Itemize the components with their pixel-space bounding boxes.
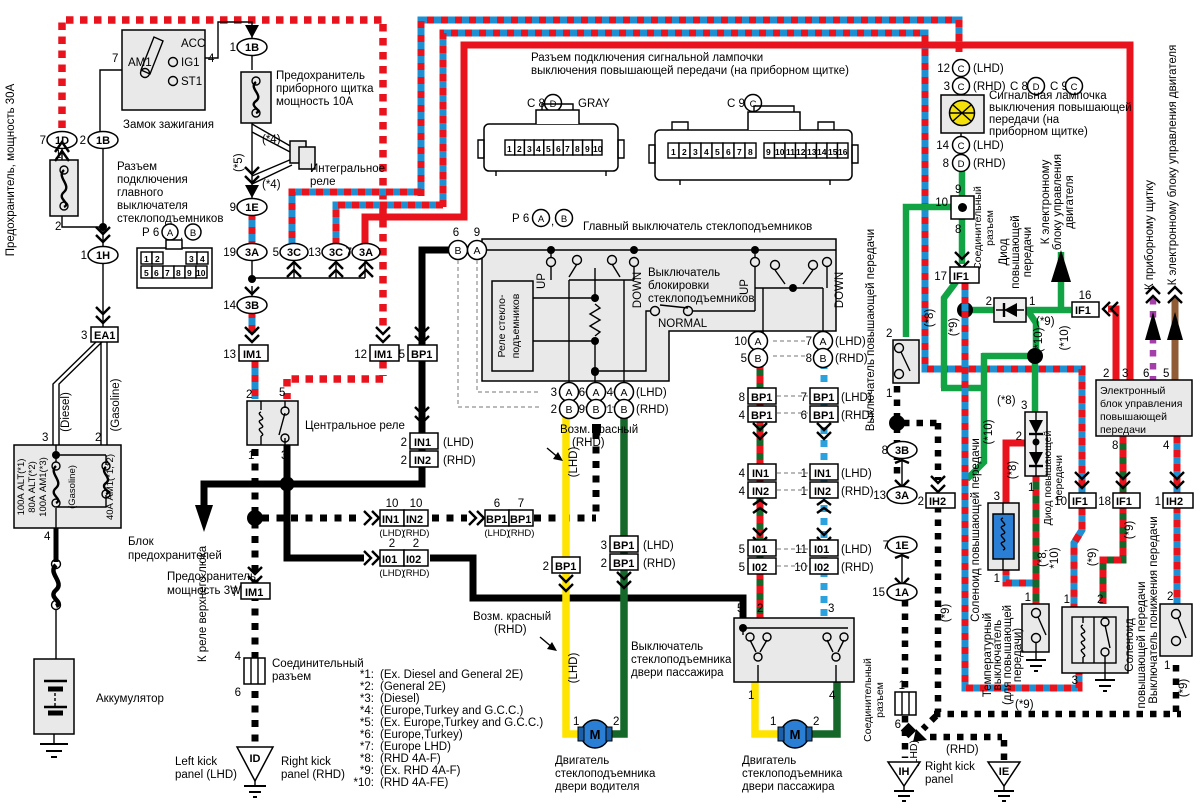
svg-text:3: 3 xyxy=(81,330,87,342)
svg-text:5: 5 xyxy=(144,268,149,278)
svg-text:13: 13 xyxy=(873,490,886,502)
svg-text:BP1: BP1 xyxy=(486,514,507,526)
svg-text:18: 18 xyxy=(1098,496,1111,508)
svg-text:Выключатель понижения передачи: Выключатель понижения передачи xyxy=(1148,516,1160,703)
svg-text:подключения: подключения xyxy=(117,174,188,186)
svg-text:10: 10 xyxy=(794,562,807,574)
svg-text:4: 4 xyxy=(235,651,242,663)
svg-text:К электронному блоку управлени: К электронному блоку управления двигател… xyxy=(1167,45,1179,286)
svg-text:(*10): (*10) xyxy=(1059,325,1071,350)
svg-text:IN1: IN1 xyxy=(382,514,399,526)
svg-text:Right kick: Right kick xyxy=(281,756,331,768)
svg-text:2: 2 xyxy=(886,328,892,340)
svg-text:А: А xyxy=(538,214,545,225)
svg-text:16: 16 xyxy=(1079,290,1092,302)
svg-text:Двигатель: Двигатель xyxy=(555,755,609,767)
svg-text:передачи: передачи xyxy=(1100,424,1146,436)
svg-text:IH: IH xyxy=(899,766,910,778)
svg-text:IG1: IG1 xyxy=(181,57,200,69)
svg-text:двери пассажира: двери пассажира xyxy=(631,667,724,679)
svg-text:Соединительный: Соединительный xyxy=(972,186,984,270)
svg-text:IF1: IF1 xyxy=(1072,496,1088,508)
svg-text:С: С xyxy=(958,64,965,75)
svg-text:BP1: BP1 xyxy=(813,392,834,404)
svg-text:14: 14 xyxy=(936,140,949,152)
svg-text:2: 2 xyxy=(246,389,252,401)
svg-text:(Gasoline): (Gasoline) xyxy=(110,378,122,431)
svg-text:4: 4 xyxy=(208,53,215,65)
svg-text:2: 2 xyxy=(551,404,557,416)
svg-text:Аккумулятор: Аккумулятор xyxy=(96,693,164,705)
svg-text:IN1: IN1 xyxy=(752,468,769,480)
svg-text:IN1: IN1 xyxy=(814,468,831,480)
svg-text:3: 3 xyxy=(828,603,834,615)
svg-text:1: 1 xyxy=(1155,496,1161,508)
svg-text:(RHD): (RHD) xyxy=(841,562,874,574)
svg-text:Замок зажигания: Замок зажигания xyxy=(123,119,214,131)
svg-text:I02: I02 xyxy=(814,562,829,574)
svg-text:10: 10 xyxy=(734,336,747,348)
svg-text:передачи: передачи xyxy=(1053,455,1065,501)
svg-text:(Ex. Diesel and General 2Е): (Ex. Diesel and General 2Е) xyxy=(380,669,523,681)
svg-text:17: 17 xyxy=(934,271,947,283)
svg-text:9: 9 xyxy=(766,147,771,157)
svg-text:IF1: IF1 xyxy=(953,271,969,283)
svg-text:IH2: IH2 xyxy=(1166,496,1183,508)
svg-text:BP1: BP1 xyxy=(751,392,772,404)
svg-text:блокировки: блокировки xyxy=(648,280,709,292)
svg-text:Центральное реле: Центральное реле xyxy=(305,420,405,432)
svg-text:80А ALT(*2): 80А ALT(*2) xyxy=(27,461,38,513)
svg-text:(LHD): (LHD) xyxy=(484,528,509,539)
svg-text:13: 13 xyxy=(223,349,236,361)
svg-text:(RHD 4A-F): (RHD 4A-F) xyxy=(380,753,441,765)
svg-text:В: В xyxy=(592,404,599,416)
svg-text:*1:: *1: xyxy=(360,669,374,681)
svg-text:1: 1 xyxy=(1028,482,1034,494)
svg-text:А: А xyxy=(473,245,480,257)
svg-text:передачи: передачи xyxy=(1022,227,1034,277)
svg-text:(LHD): (LHD) xyxy=(379,568,404,579)
svg-text:3В: 3В xyxy=(245,300,259,312)
svg-text:(*9): (*9) xyxy=(1087,548,1099,567)
svg-text:5: 5 xyxy=(279,387,285,399)
svg-text:В: В xyxy=(565,404,572,416)
svg-text:(*9): (*9) xyxy=(948,318,960,337)
svg-text:1: 1 xyxy=(801,486,807,498)
svg-text:А: А xyxy=(620,387,627,399)
svg-text:(*4): (*4) xyxy=(262,134,281,146)
svg-text:M: M xyxy=(790,727,801,742)
svg-text:повышающей передачи: повышающей передачи xyxy=(1136,581,1148,708)
svg-text:передачи (на: передачи (на xyxy=(989,114,1060,126)
svg-text:(LHD): (LHD) xyxy=(568,447,580,478)
svg-text:Интегральное: Интегральное xyxy=(310,163,385,175)
svg-text:Предохранитель, мощность 30А: Предохранитель, мощность 30А xyxy=(5,83,17,256)
svg-text:10: 10 xyxy=(775,147,785,157)
svg-text:I01: I01 xyxy=(382,554,397,566)
svg-text:6: 6 xyxy=(556,144,561,154)
svg-text:ACC: ACC xyxy=(181,38,205,50)
svg-text:3: 3 xyxy=(994,491,1000,503)
svg-text:100А ALT(*1): 100А ALT(*1) xyxy=(16,459,27,516)
svg-text:1: 1 xyxy=(507,144,512,154)
svg-text:главного: главного xyxy=(117,187,163,199)
svg-text:1: 1 xyxy=(81,250,87,262)
svg-text:выключателя: выключателя xyxy=(117,200,188,212)
svg-text:*9:: *9: xyxy=(360,765,374,777)
svg-text:реле: реле xyxy=(310,176,336,188)
svg-text:(RHD): (RHD) xyxy=(973,158,1006,170)
svg-text:(*5): (*5) xyxy=(233,153,245,172)
svg-text:А: А xyxy=(819,336,826,348)
svg-text:2: 2 xyxy=(1167,591,1173,603)
svg-text:IM1: IM1 xyxy=(243,349,261,361)
svg-text:2: 2 xyxy=(401,455,407,467)
svg-text:(*8): (*8) xyxy=(1007,461,1019,480)
svg-text:3В: 3В xyxy=(895,445,909,457)
svg-text:19: 19 xyxy=(223,247,236,259)
svg-text:2: 2 xyxy=(95,432,101,444)
svg-text:DOWN: DOWN xyxy=(632,272,644,308)
svg-text:2: 2 xyxy=(517,144,522,154)
svg-text:разъем: разъем xyxy=(984,210,996,246)
svg-text:DOWN: DOWN xyxy=(834,272,846,308)
svg-text:16: 16 xyxy=(838,147,848,157)
svg-text:*2:: *2: xyxy=(360,681,374,693)
svg-text:5: 5 xyxy=(739,562,745,574)
svg-text:7: 7 xyxy=(165,268,170,278)
svg-text:7: 7 xyxy=(801,392,807,404)
svg-text:2: 2 xyxy=(389,538,395,550)
svg-text:,: , xyxy=(551,216,554,228)
svg-text:(Ex. Europe,Turkey and G.C.C.: (Ex. Europe,Turkey and G.C.C.) xyxy=(380,717,543,729)
svg-text:9: 9 xyxy=(579,404,585,416)
svg-text:3С: 3С xyxy=(329,247,343,259)
svg-text:Выключатель повышающей передач: Выключатель повышающей передачи xyxy=(865,229,877,431)
svg-text:6: 6 xyxy=(154,268,159,278)
svg-text:BP1: BP1 xyxy=(411,349,432,361)
svg-text:5: 5 xyxy=(737,603,743,615)
svg-text:1B: 1B xyxy=(96,135,110,147)
svg-text:*8:: *8: xyxy=(360,753,374,765)
svg-text:А: А xyxy=(592,387,599,399)
svg-text:*7:: *7: xyxy=(360,741,374,753)
svg-text:(RHD): (RHD) xyxy=(636,404,669,416)
svg-text:(Ex. RHD 4A-F): (Ex. RHD 4A-F) xyxy=(380,765,461,777)
svg-text:1H: 1H xyxy=(96,250,110,262)
svg-text:IN1: IN1 xyxy=(414,437,431,449)
svg-text:Двигатель: Двигатель xyxy=(742,755,796,767)
svg-text:подъемников: подъемников xyxy=(510,293,522,358)
svg-text:12: 12 xyxy=(354,349,367,361)
svg-text:(RHD): (RHD) xyxy=(494,624,527,636)
svg-text:Соединительный: Соединительный xyxy=(272,658,364,670)
svg-text:А: А xyxy=(565,387,572,399)
svg-text:2: 2 xyxy=(682,147,687,157)
svg-text:2: 2 xyxy=(613,716,619,728)
svg-text:40А АМ1(*1,*2): 40А АМ1(*1,*2) xyxy=(105,454,116,520)
svg-text:7: 7 xyxy=(806,336,812,348)
svg-text:1E: 1E xyxy=(245,202,258,214)
svg-text:3: 3 xyxy=(551,387,557,399)
svg-text:К электронному: К электронному xyxy=(1040,159,1052,244)
svg-text:Right kick: Right kick xyxy=(925,761,975,773)
svg-text:IH2: IH2 xyxy=(929,496,946,508)
svg-text:8: 8 xyxy=(748,147,753,157)
svg-text:А: А xyxy=(754,336,761,348)
svg-text:5: 5 xyxy=(741,353,747,365)
svg-text:IM1: IM1 xyxy=(245,587,263,599)
svg-text:I02: I02 xyxy=(406,554,421,566)
svg-text:11: 11 xyxy=(795,544,807,556)
svg-text:8: 8 xyxy=(1112,440,1118,452)
svg-text:(RHD): (RHD) xyxy=(841,486,874,498)
svg-text:(LHD): (LHD) xyxy=(636,387,667,399)
svg-text:2: 2 xyxy=(55,221,61,233)
svg-text:3А: 3А xyxy=(245,247,259,259)
svg-text:9: 9 xyxy=(955,184,961,196)
svg-text:(LHD): (LHD) xyxy=(643,540,674,552)
svg-text:6: 6 xyxy=(235,687,241,699)
svg-text:7: 7 xyxy=(565,144,570,154)
svg-text:выключения повышающей: выключения повышающей xyxy=(989,102,1132,114)
svg-text:1: 1 xyxy=(770,716,776,728)
svg-text:приборном щитке): приборном щитке) xyxy=(989,126,1088,138)
svg-text:2: 2 xyxy=(413,538,419,550)
svg-text:(Europe LHD): (Europe LHD) xyxy=(380,741,451,753)
svg-text:panel (RHD): panel (RHD) xyxy=(281,769,345,781)
svg-text:(*9): (*9) xyxy=(1015,699,1034,711)
svg-text:panel (LHD): panel (LHD) xyxy=(175,769,237,781)
svg-text:Разъем подключения сигнальной: Разъем подключения сигнальной лампочки xyxy=(531,52,763,64)
svg-text:(*8): (*8) xyxy=(924,309,936,328)
svg-text:2: 2 xyxy=(80,135,86,147)
svg-text:BP1: BP1 xyxy=(555,561,576,573)
svg-text:5: 5 xyxy=(273,247,279,259)
svg-text:К реле верхнего люка: К реле верхнего люка xyxy=(197,545,209,662)
svg-text:2: 2 xyxy=(918,496,924,508)
svg-text:1: 1 xyxy=(994,573,1000,585)
svg-text:стеклоподъемников: стеклоподъемников xyxy=(117,213,223,225)
svg-text:4: 4 xyxy=(1163,440,1170,452)
svg-text:4: 4 xyxy=(739,468,746,480)
svg-text:6: 6 xyxy=(1143,368,1149,380)
svg-text:14: 14 xyxy=(223,300,236,312)
svg-text:8: 8 xyxy=(806,353,812,365)
svg-text:15: 15 xyxy=(828,147,838,157)
svg-text:5: 5 xyxy=(546,144,551,154)
svg-text:двигателя: двигателя xyxy=(1064,175,1076,228)
svg-text:Сигнальная лампочка: Сигнальная лампочка xyxy=(989,90,1107,102)
svg-text:(LHD): (LHD) xyxy=(835,336,866,348)
svg-text:Выключатель: Выключатель xyxy=(631,641,703,653)
svg-text:9: 9 xyxy=(187,268,192,278)
svg-text:(LHD): (LHD) xyxy=(973,140,1004,152)
svg-text:1: 1 xyxy=(1029,296,1035,308)
svg-text:9: 9 xyxy=(230,202,236,214)
svg-text:3: 3 xyxy=(944,81,950,93)
svg-text:2: 2 xyxy=(1016,431,1022,443)
svg-text:3А: 3А xyxy=(895,490,909,502)
svg-text:(RHD 4A-FE): (RHD 4A-FE) xyxy=(380,777,449,789)
svg-text:выключения повышающей передачи: выключения повышающей передачи (на прибо… xyxy=(531,65,849,77)
svg-text:D: D xyxy=(958,159,965,170)
svg-text:2: 2 xyxy=(1097,594,1103,606)
svg-text:(LHD): (LHD) xyxy=(568,653,580,684)
svg-text:1: 1 xyxy=(607,404,613,416)
svg-text:6: 6 xyxy=(726,147,731,157)
svg-text:2: 2 xyxy=(757,603,763,615)
svg-text:8: 8 xyxy=(176,268,181,278)
svg-text:(RHD): (RHD) xyxy=(946,744,979,756)
svg-text:7: 7 xyxy=(40,135,46,147)
svg-text:7: 7 xyxy=(232,587,238,599)
svg-text:IN2: IN2 xyxy=(814,486,831,498)
svg-text:13: 13 xyxy=(308,247,321,259)
svg-text:BP1: BP1 xyxy=(751,410,772,422)
svg-text:7: 7 xyxy=(112,53,118,65)
svg-text:(RHD): (RHD) xyxy=(508,528,535,539)
svg-text:(Europe,Turkey): (Europe,Turkey) xyxy=(380,729,463,741)
svg-text:3: 3 xyxy=(1021,400,1027,412)
svg-text:А: А xyxy=(167,228,174,239)
svg-text:В: В xyxy=(190,228,196,239)
svg-text:5: 5 xyxy=(1163,368,1169,380)
svg-text:4: 4 xyxy=(739,410,746,422)
svg-text:7: 7 xyxy=(737,147,742,157)
svg-text:Электронный: Электронный xyxy=(1100,385,1166,397)
svg-text:С 9: С 9 xyxy=(727,98,745,110)
svg-text:1B: 1B xyxy=(245,42,259,54)
svg-text:*4:: *4: xyxy=(360,705,374,717)
svg-text:BP1: BP1 xyxy=(510,514,531,526)
svg-text:1Е: 1Е xyxy=(895,540,908,552)
svg-text:(RHD): (RHD) xyxy=(403,568,430,579)
svg-text:1: 1 xyxy=(886,388,892,400)
svg-text:(*8,: (*8, xyxy=(1037,549,1049,567)
svg-text:(*9): (*9) xyxy=(1124,521,1136,540)
svg-text:I01: I01 xyxy=(814,544,829,556)
svg-text:1А: 1А xyxy=(895,587,909,599)
svg-text:10: 10 xyxy=(935,197,948,209)
svg-text:1: 1 xyxy=(230,42,236,54)
svg-text:11: 11 xyxy=(786,147,795,157)
svg-text:14: 14 xyxy=(817,147,827,157)
svg-text:I02: I02 xyxy=(752,562,767,574)
svg-text:Разъем: Разъем xyxy=(117,161,157,173)
svg-text:1: 1 xyxy=(144,254,149,264)
svg-text:AM1: AM1 xyxy=(128,57,152,69)
svg-text:(*8): (*8) xyxy=(997,395,1016,407)
svg-text:Реле стекло-: Реле стекло- xyxy=(496,294,508,357)
svg-text:10: 10 xyxy=(196,268,206,278)
svg-text:BP1: BP1 xyxy=(813,410,834,422)
svg-text:4: 4 xyxy=(829,690,836,702)
svg-text:Р 6: Р 6 xyxy=(512,213,529,225)
svg-text:Главный выключатель стеклоподъ: Главный выключатель стеклоподъемников xyxy=(583,221,812,233)
svg-text:3: 3 xyxy=(601,540,607,552)
svg-text:3: 3 xyxy=(1122,368,1128,380)
svg-text:*3:: *3: xyxy=(360,693,374,705)
svg-text:2: 2 xyxy=(543,561,549,573)
svg-text:NORMAL: NORMAL xyxy=(658,318,708,330)
svg-text:7: 7 xyxy=(518,498,524,510)
svg-text:2: 2 xyxy=(1103,368,1109,380)
svg-text:IE: IE xyxy=(999,766,1009,778)
svg-text:Блок: Блок xyxy=(128,536,155,548)
svg-text:6: 6 xyxy=(801,410,807,422)
svg-text:panel: panel xyxy=(925,774,953,786)
svg-text:Р 6: Р 6 xyxy=(142,227,159,239)
svg-text:8: 8 xyxy=(739,392,745,404)
svg-text:(*9): (*9) xyxy=(940,604,952,623)
svg-text:IN2: IN2 xyxy=(752,486,769,498)
svg-text:4: 4 xyxy=(536,144,541,154)
svg-text:IN2: IN2 xyxy=(414,455,431,467)
svg-text:(Diesel): (Diesel) xyxy=(380,693,420,705)
svg-text:1: 1 xyxy=(748,690,754,702)
svg-text:8: 8 xyxy=(943,158,949,170)
svg-text:двери водителя: двери водителя xyxy=(555,781,639,793)
svg-text:(*9): (*9) xyxy=(1036,316,1055,328)
svg-text:3: 3 xyxy=(1072,675,1078,687)
svg-text:1: 1 xyxy=(1025,592,1031,604)
svg-text:I01: I01 xyxy=(752,544,767,556)
svg-text:С: С xyxy=(958,82,965,93)
svg-text:1: 1 xyxy=(248,450,254,462)
svg-text:6: 6 xyxy=(895,719,901,731)
svg-text:С: С xyxy=(958,141,965,152)
svg-text:*6:: *6: xyxy=(360,729,374,741)
svg-text:6: 6 xyxy=(453,227,459,239)
svg-text:3А: 3А xyxy=(359,247,373,259)
svg-text:1: 1 xyxy=(671,147,676,157)
svg-text:10: 10 xyxy=(410,498,423,510)
svg-text:Соединительный: Соединительный xyxy=(862,658,874,742)
svg-text:(Gasoline): (Gasoline) xyxy=(67,465,78,509)
svg-text:4: 4 xyxy=(739,486,746,498)
svg-text:2: 2 xyxy=(401,437,407,449)
svg-text:стеклоподъемника: стеклоподъемника xyxy=(742,768,843,780)
svg-text:Left kick: Left kick xyxy=(175,756,217,768)
svg-text:EA1: EA1 xyxy=(94,330,115,342)
svg-text:Возм. красный: Возм. красный xyxy=(560,424,638,436)
svg-text:13: 13 xyxy=(807,147,817,157)
svg-text:BP1: BP1 xyxy=(613,558,634,570)
svg-text:(RHD): (RHD) xyxy=(835,353,868,365)
svg-text:Выключатель: Выключатель xyxy=(648,267,720,279)
svg-text:(RHD): (RHD) xyxy=(443,455,476,467)
svg-text:2: 2 xyxy=(601,558,607,570)
svg-text:BP1: BP1 xyxy=(613,540,634,552)
svg-text:Диод: Диод xyxy=(998,238,1010,265)
svg-text:В: В xyxy=(620,404,627,416)
svg-text:разъем: разъем xyxy=(874,682,886,718)
svg-text:(LHD): (LHD) xyxy=(841,468,872,480)
svg-text:В: В xyxy=(754,353,761,365)
svg-text:10: 10 xyxy=(386,498,399,510)
svg-text:1: 1 xyxy=(1164,660,1170,672)
svg-text:(*10): (*10) xyxy=(1033,327,1045,352)
svg-text:10: 10 xyxy=(1054,496,1067,508)
svg-text:4: 4 xyxy=(607,387,614,399)
svg-text:5: 5 xyxy=(739,544,745,556)
svg-text:GRAY: GRAY xyxy=(578,98,610,110)
svg-text:9: 9 xyxy=(585,144,590,154)
svg-text:(LHD): (LHD) xyxy=(841,544,872,556)
svg-text:2: 2 xyxy=(813,716,819,728)
